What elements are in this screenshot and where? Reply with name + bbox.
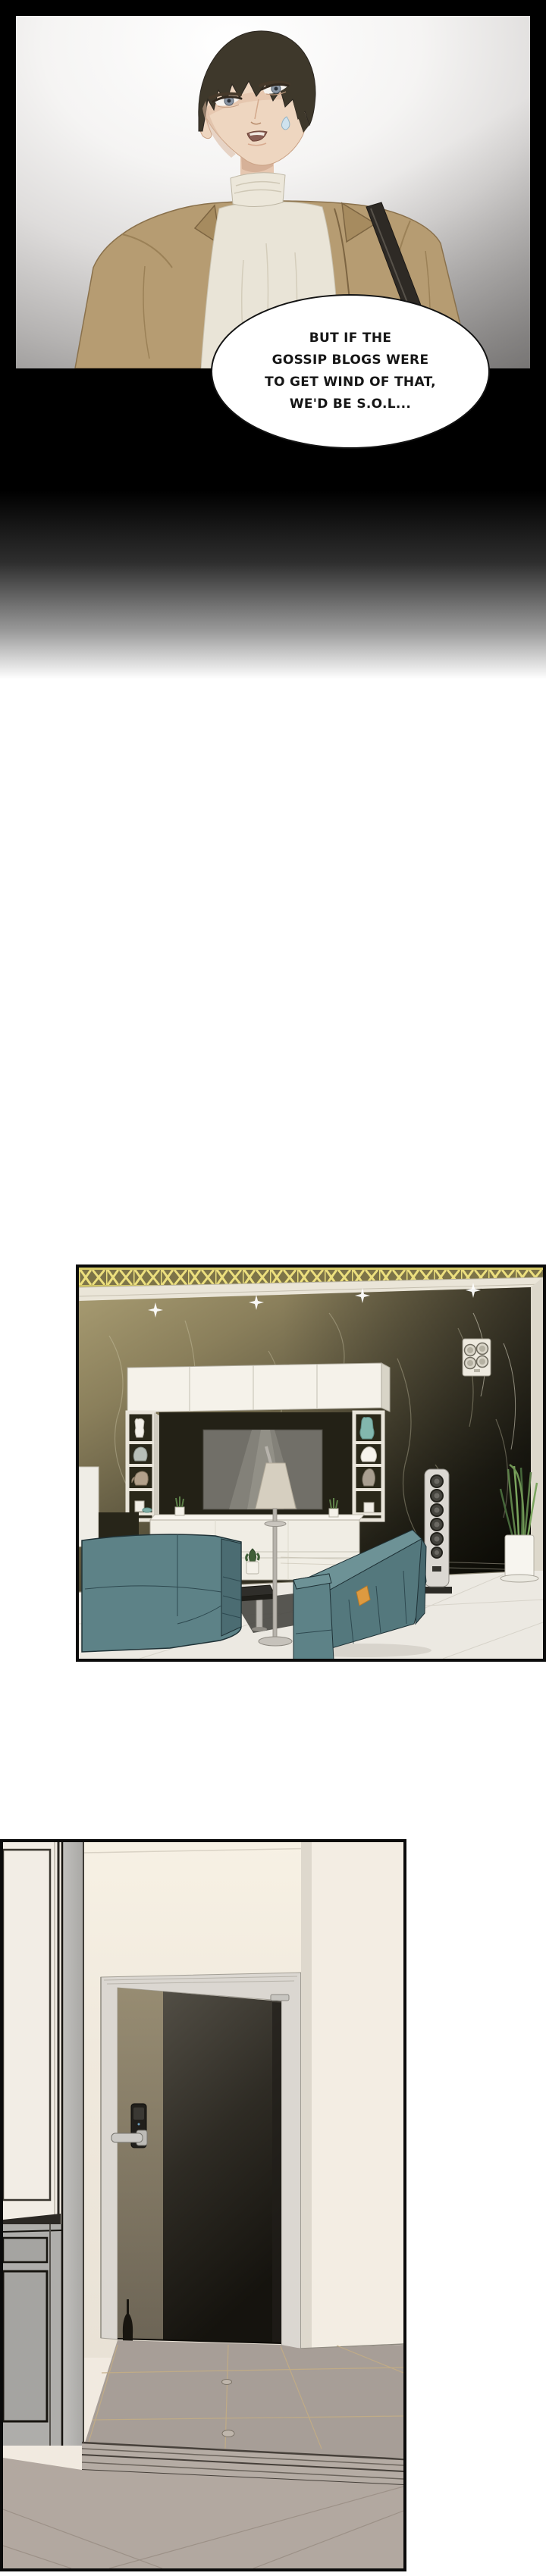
webtoon-page: BUT IF THE GOSSIP BLOGS WERE TO GET WIND…	[0, 0, 546, 2576]
teal-plate	[143, 1508, 152, 1512]
panel-hallway	[0, 1839, 406, 2571]
floor-drain-2	[222, 2430, 234, 2437]
right-shelf-tower	[354, 1412, 383, 1520]
bubble-line-2: GOSSIP BLOGS WERE	[272, 349, 429, 371]
left-white-column	[79, 1467, 99, 1547]
panel-living-room	[76, 1264, 546, 1662]
door-dark-panel	[163, 1992, 281, 2343]
left-closet-door	[3, 1842, 61, 2230]
door-khaki-panel	[118, 1988, 163, 2340]
tiled-floor	[84, 2340, 403, 2458]
hallway-illustration	[3, 1842, 403, 2568]
vase-white-slim	[135, 1418, 144, 1437]
left-shelf-tower	[127, 1412, 159, 1521]
right-wall	[301, 1842, 403, 2349]
living-room-illustration	[79, 1268, 543, 1659]
bubble-line-4: WE'D BE S.O.L...	[290, 393, 411, 415]
gray-lower-cabinet	[3, 2224, 61, 2446]
turtleneck-collar	[231, 173, 285, 207]
speech-bubble: BUT IF THE GOSSIP BLOGS WERE TO GET WIND…	[211, 294, 490, 449]
entrance-door	[111, 1988, 289, 2348]
floor-speaker	[422, 1469, 452, 1594]
bubble-line-1: BUT IF THE	[309, 327, 392, 349]
bubble-line-3: TO GET WIND OF THAT,	[265, 371, 436, 393]
vase-teal	[360, 1418, 374, 1440]
sofa-left	[82, 1534, 241, 1652]
door-closer	[271, 1995, 289, 2001]
vase-celadon	[133, 1447, 147, 1461]
upper-cabinets	[127, 1363, 381, 1412]
floor-drain-1	[222, 2380, 232, 2385]
gray-post	[61, 1842, 84, 2446]
wall-intercom	[463, 1339, 491, 1376]
corner-wall-strip	[531, 1277, 543, 1571]
